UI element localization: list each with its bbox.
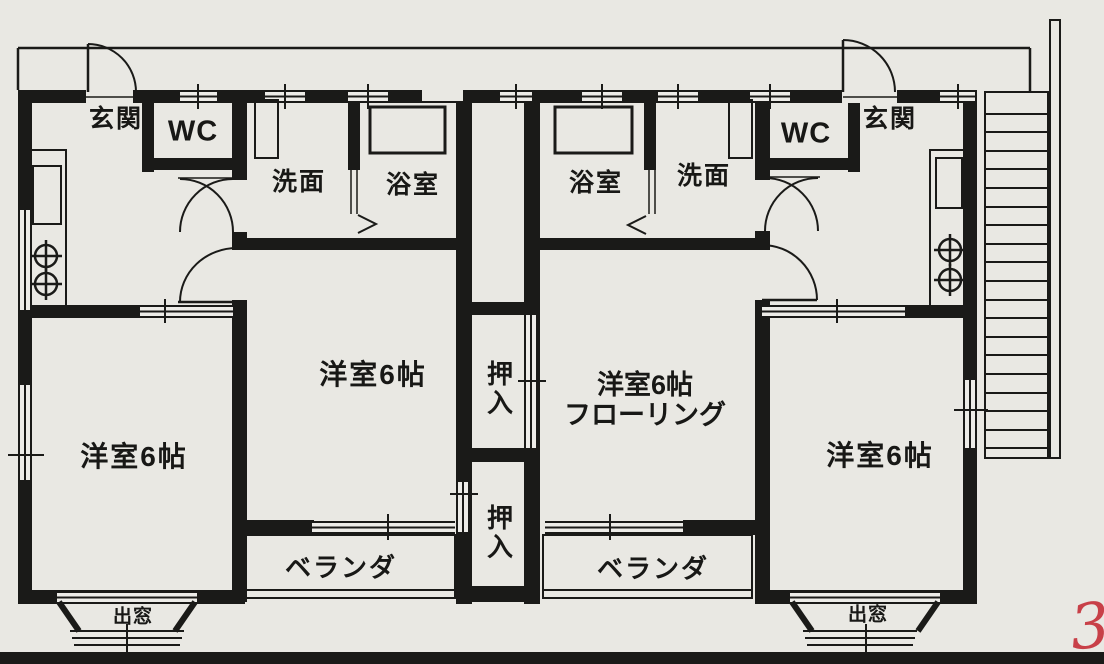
hall-door-lower-left [178, 248, 237, 302]
bath-door-right [628, 168, 655, 234]
closet-label-bottom: 押入 [481, 504, 518, 562]
bathtub-icon [370, 107, 632, 153]
room-label-yoshitsu-middle-left: 洋室6帖 [319, 353, 427, 393]
baywindow-label-right: 出窓 [848, 600, 888, 627]
room-label-genkan-left: 玄関 [89, 99, 143, 135]
room-label-wc-left: WC [168, 116, 218, 149]
hall-door-lower-right [762, 245, 817, 300]
floorplan-scan: { "labels": { "genkan": "玄関", "wc": "WC"… [0, 0, 1104, 664]
red-pen-mark: 3 [1066, 588, 1104, 664]
room-label-genkan-right: 玄関 [863, 99, 917, 135]
room-label-yoshitsu-middle-right: 洋室6帖 フローリング [564, 370, 726, 430]
closet-label-top: 押入 [481, 360, 518, 418]
staircase [985, 20, 1060, 458]
baywindow-label-left: 出窓 [113, 602, 153, 629]
room-label-yoshitsu-middle-right-line1: 洋室6帖 [564, 370, 726, 400]
hall-door-upper-left [178, 178, 237, 232]
side-margin-note: < 入印保印 [1076, 10, 1104, 162]
kitchen-counter-right [930, 150, 963, 306]
stove-burner-icon [30, 234, 966, 300]
hall-door-upper-right [762, 177, 820, 231]
room-label-senmen-left: 洗面 [272, 162, 326, 198]
room-label-flooring: フローリング [564, 400, 726, 430]
room-label-bath-left: 浴室 [386, 165, 440, 201]
entrance-door-left [86, 44, 136, 97]
room-label-yoshitsu-bottom-right: 洋室6帖 [826, 434, 934, 474]
room-label-senmen-right: 洗面 [677, 156, 731, 192]
veranda-label-right: ベランダ [597, 549, 709, 586]
room-label-bath-right: 浴室 [569, 163, 623, 199]
veranda-label-left: ベランダ [285, 548, 397, 585]
bath-door-left [351, 168, 376, 233]
room-label-yoshitsu-bottom-left: 洋室6帖 [80, 435, 188, 475]
room-label-wc-right: WC [781, 118, 831, 151]
